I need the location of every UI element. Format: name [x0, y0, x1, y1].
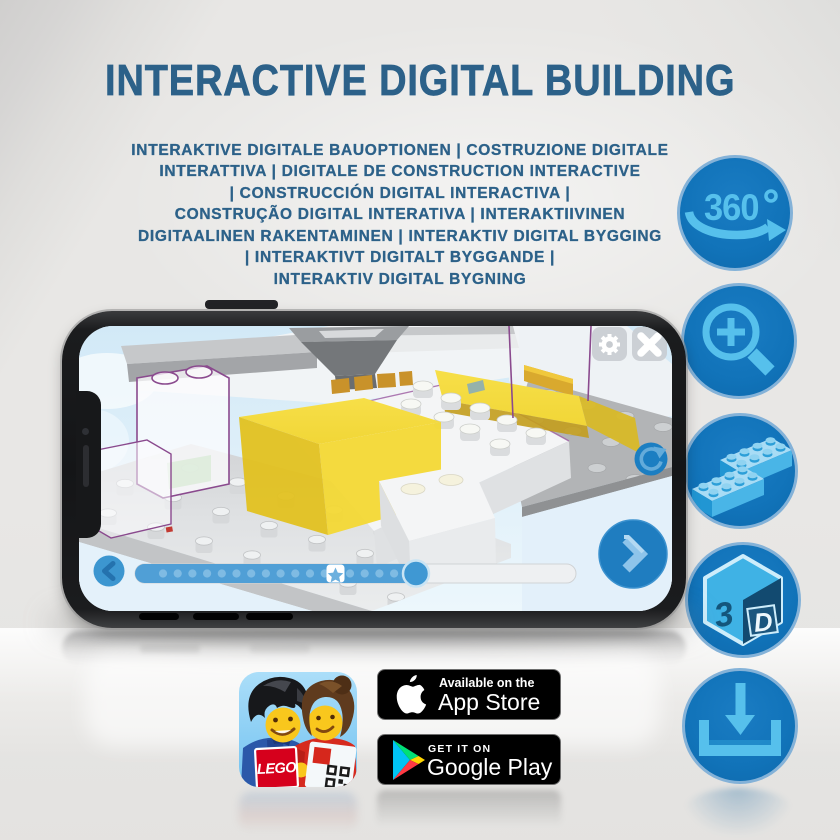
- svg-text:D: D: [752, 606, 774, 638]
- svg-text:Google Play: Google Play: [427, 754, 553, 780]
- svg-text:Available on the: Available on the: [439, 676, 534, 690]
- svg-text:LEGO: LEGO: [257, 760, 298, 778]
- svg-text:360: 360: [704, 187, 759, 228]
- svg-text:App Store: App Store: [438, 689, 540, 715]
